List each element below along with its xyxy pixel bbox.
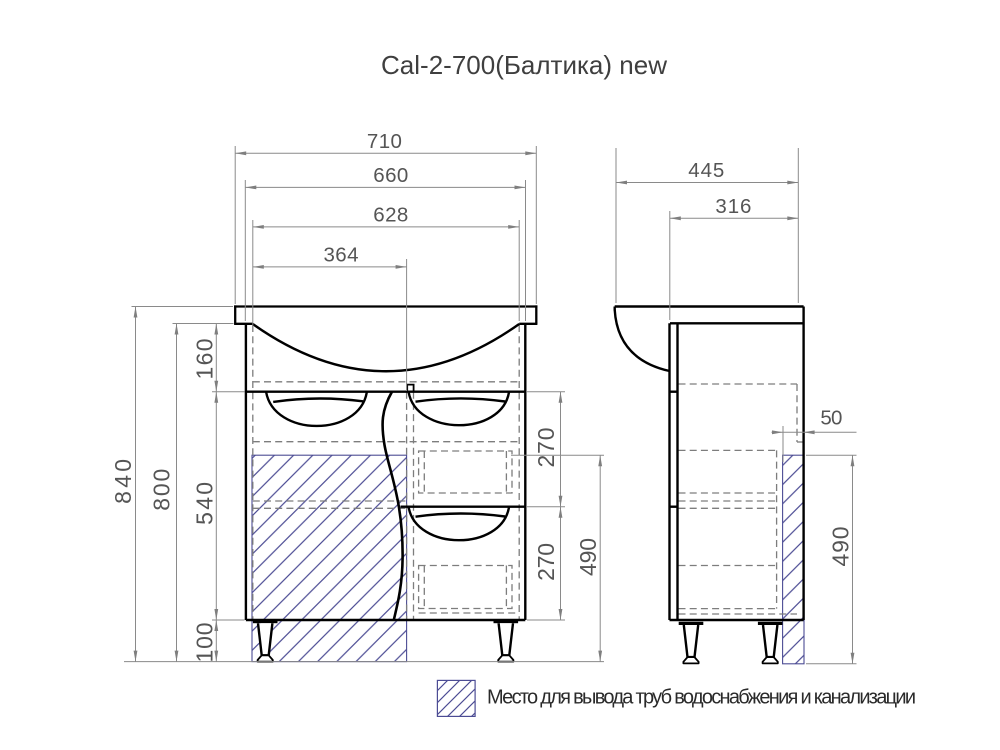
- svg-text:50: 50: [820, 407, 842, 430]
- svg-text:628: 628: [373, 203, 408, 226]
- svg-text:840: 840: [110, 459, 136, 504]
- svg-text:710: 710: [367, 130, 402, 153]
- svg-text:270: 270: [533, 428, 559, 468]
- svg-text:Cal-2-700(Балтика) new: Cal-2-700(Балтика) new: [381, 50, 667, 80]
- svg-text:316: 316: [715, 195, 751, 218]
- svg-text:800: 800: [149, 469, 175, 511]
- svg-text:490: 490: [575, 538, 601, 576]
- svg-text:160: 160: [192, 339, 218, 380]
- svg-text:490: 490: [828, 527, 854, 567]
- svg-text:Место для вывода труб водоснаб: Место для вывода труб водоснабжения и ка…: [487, 687, 916, 709]
- svg-text:445: 445: [688, 159, 724, 182]
- svg-text:270: 270: [533, 543, 559, 581]
- svg-text:660: 660: [373, 164, 408, 187]
- svg-text:100: 100: [192, 623, 218, 663]
- svg-text:364: 364: [324, 243, 359, 266]
- svg-text:540: 540: [192, 482, 218, 525]
